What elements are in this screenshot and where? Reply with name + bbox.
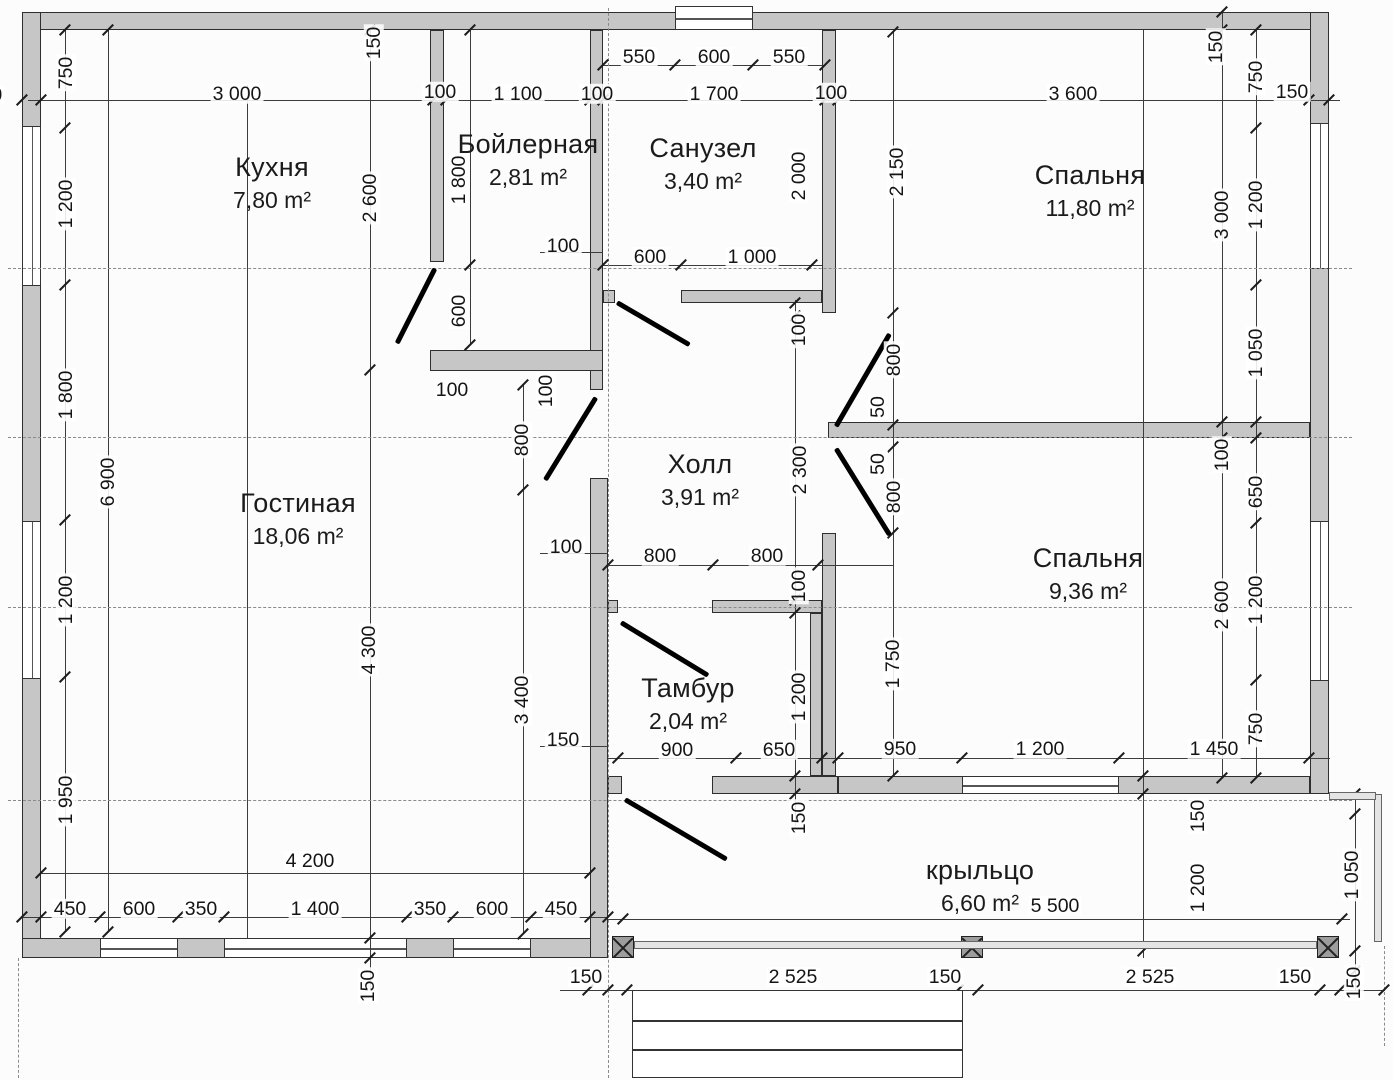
- dimension-label: 650: [1246, 474, 1266, 511]
- door-leaf: [624, 797, 728, 861]
- dimension-label: 150: [1206, 29, 1226, 66]
- window-mullion: [963, 785, 1118, 787]
- dimension-label: 50: [868, 394, 888, 420]
- dimension-label: 800: [749, 546, 786, 566]
- room-label: Тамбур2,04 m²: [641, 673, 734, 735]
- porch-rail: [1374, 794, 1382, 942]
- dimension-label: 100: [789, 568, 809, 605]
- dimension-label: 1 800: [56, 369, 76, 422]
- porch-post: [612, 936, 634, 958]
- window: [962, 776, 1119, 794]
- wall: [822, 533, 836, 776]
- dimension-label: 150: [545, 730, 582, 750]
- window-mullion: [32, 522, 34, 678]
- wall: [681, 290, 822, 303]
- room-label: крыльцо6,60 m²: [926, 855, 1034, 917]
- window: [100, 938, 178, 958]
- dimension-label: 600: [632, 247, 669, 267]
- dimension-label: 100: [545, 236, 582, 256]
- dimension-label: 50: [868, 451, 888, 477]
- dimension-label: 100: [1212, 437, 1232, 474]
- dimension-label: 750: [1246, 711, 1266, 748]
- wall: [603, 290, 615, 303]
- window: [1310, 123, 1329, 269]
- wall: [810, 613, 822, 776]
- dimension-label: 150: [358, 968, 378, 1005]
- dimension-label: 600: [696, 47, 733, 67]
- door-leaf: [616, 300, 691, 347]
- dimension-line: [41, 873, 590, 874]
- window-mullion: [32, 127, 34, 285]
- window: [22, 521, 41, 679]
- dimension-label: 3 400: [512, 674, 532, 727]
- room-name: Гостиная: [240, 488, 356, 519]
- axis-line: [8, 607, 1352, 608]
- dimension-label: 3 000: [1212, 189, 1232, 242]
- dimension-label: 1 050: [1246, 327, 1266, 380]
- dimension-label: 1 200: [56, 574, 76, 627]
- dimension-label: 100: [579, 84, 616, 104]
- room-label: Холл3,91 m²: [661, 449, 739, 511]
- room-name: крыльцо: [926, 855, 1034, 886]
- axis-line: [18, 958, 19, 1078]
- dimension-label: 150: [0, 85, 4, 105]
- room-area: 2,81 m²: [458, 164, 599, 191]
- dimension-label: 1 200: [1246, 574, 1266, 627]
- dimension-label: 950: [882, 739, 919, 759]
- dimension-label: 2 300: [790, 444, 810, 497]
- dimension-label: 2 600: [360, 172, 380, 225]
- room-area: 3,91 m²: [661, 484, 739, 511]
- dimension-label: 600: [474, 899, 511, 919]
- dimension-label: 3 600: [1047, 84, 1100, 104]
- window-mullion: [1320, 522, 1322, 680]
- room-name: Спальня: [1033, 543, 1144, 574]
- dimension-label: 1 200: [1246, 179, 1266, 232]
- dimension-label: 150: [568, 967, 605, 987]
- dimension-label: 150: [1274, 82, 1311, 102]
- room-area: 18,06 m²: [240, 523, 356, 550]
- dimension-label: 650: [761, 740, 798, 760]
- room-area: 2,04 m²: [641, 708, 734, 735]
- dimension-label: 100: [422, 82, 459, 102]
- dimension-label: 5 500: [1029, 896, 1082, 916]
- dimension-label: 100: [536, 373, 556, 410]
- dimension-line: [1222, 12, 1223, 778]
- window: [22, 126, 41, 286]
- window: [224, 938, 407, 958]
- dimension-label: 100: [548, 537, 585, 557]
- room-area: 9,36 m²: [1033, 578, 1144, 605]
- room-name: Санузел: [649, 133, 756, 164]
- dimension-line: [608, 919, 1350, 920]
- room-area: 6,60 m²: [926, 890, 1034, 917]
- dimension-label: 350: [412, 899, 449, 919]
- porch-stairs: [632, 990, 963, 1078]
- dimension-label: 2 000: [789, 150, 809, 203]
- window: [453, 938, 531, 958]
- dimension-label: 2 600: [1212, 579, 1232, 632]
- dimension-label: 1 200: [1188, 862, 1208, 915]
- wall: [608, 776, 622, 794]
- room-name: Спальня: [1035, 160, 1146, 191]
- dimension-label: 600: [121, 899, 158, 919]
- dimension-label: 100: [434, 380, 471, 400]
- window: [675, 6, 753, 30]
- dimension-label: 1 200: [789, 671, 809, 724]
- dimension-label: 800: [512, 422, 532, 459]
- dimension-label: 1 200: [56, 178, 76, 231]
- dimension-label: 1 050: [1342, 849, 1362, 902]
- porch-rail: [1329, 792, 1376, 800]
- porch-post: [1317, 936, 1339, 958]
- window: [1310, 521, 1329, 681]
- dimension-label: 1 400: [289, 899, 342, 919]
- room-label: Кухня7,80 m²: [233, 152, 311, 214]
- dimension-label: 900: [659, 740, 696, 760]
- dimension-label: 150: [789, 800, 809, 837]
- dimension-label: 1 950: [56, 774, 76, 827]
- room-name: Холл: [661, 449, 739, 480]
- room-name: Тамбур: [641, 673, 734, 704]
- dimension-label: 6 900: [98, 456, 118, 509]
- room-label: Спальня9,36 m²: [1033, 543, 1144, 605]
- dimension-label: 1 750: [883, 638, 903, 691]
- dimension-label: 3 000: [211, 84, 264, 104]
- dimension-label: 100: [789, 312, 809, 349]
- axis-line: [8, 437, 1352, 438]
- dimension-label: 1 700: [688, 84, 741, 104]
- dimension-label: 800: [884, 342, 904, 379]
- dimension-label: 150: [1344, 965, 1364, 1002]
- room-area: 11,80 m²: [1035, 195, 1146, 222]
- wall: [828, 422, 1310, 438]
- dimension-label: 1 450: [1188, 739, 1241, 759]
- dimension-label: 350: [183, 899, 220, 919]
- dimension-label: 750: [1246, 59, 1266, 96]
- dimension-label: 450: [543, 899, 580, 919]
- dimension-line: [523, 385, 524, 934]
- dimension-label: 4 300: [359, 624, 379, 677]
- room-label: Гостиная18,06 m²: [240, 488, 356, 550]
- dimension-label: 750: [56, 55, 76, 92]
- room-area: 3,40 m²: [649, 168, 756, 195]
- dimension-label: 800: [642, 546, 679, 566]
- window-mullion: [1320, 124, 1322, 268]
- dimension-label: 550: [621, 47, 658, 67]
- floor-plan-canvas: 1507503 0001001 1001001 7001003 60015015…: [0, 0, 1393, 1080]
- dimension-label: 150: [1277, 967, 1314, 987]
- stair-tread: [633, 1049, 962, 1051]
- room-name: Кухня: [233, 152, 311, 183]
- dimension-label: 1 200: [1014, 739, 1067, 759]
- wall: [590, 478, 608, 958]
- dimension-label: 150: [364, 25, 384, 62]
- dimension-label: 600: [449, 293, 469, 330]
- room-area: 7,80 m²: [233, 187, 311, 214]
- axis-line: [8, 800, 1352, 801]
- window-mullion: [454, 948, 530, 950]
- dimension-label: 100: [813, 83, 850, 103]
- wall: [712, 776, 838, 794]
- dimension-label: 450: [52, 899, 89, 919]
- stair-tread: [633, 1020, 962, 1022]
- wall: [430, 30, 444, 262]
- dimension-label: 4 200: [284, 851, 337, 871]
- window-mullion: [225, 948, 406, 950]
- room-name: Бойлерная: [458, 129, 599, 160]
- wall: [430, 350, 603, 371]
- porch-rail: [634, 941, 1317, 949]
- window-mullion: [101, 948, 177, 950]
- dimension-label: 1 000: [726, 247, 779, 267]
- dimension-label: 2 525: [1124, 967, 1177, 987]
- axis-line: [8, 268, 1352, 269]
- dimension-label: 150: [1188, 798, 1208, 835]
- window-mullion: [676, 18, 752, 20]
- room-label: Санузел3,40 m²: [649, 133, 756, 195]
- dimension-label: 150: [927, 967, 964, 987]
- dimension-label: 550: [771, 47, 808, 67]
- room-label: Бойлерная2,81 m²: [458, 129, 599, 191]
- dimension-label: 2 150: [887, 146, 907, 199]
- axis-line: [1384, 946, 1385, 1046]
- dimension-label: 800: [884, 479, 904, 516]
- dimension-label: 1 100: [492, 84, 545, 104]
- door-leaf: [395, 267, 437, 344]
- wall: [822, 30, 836, 313]
- room-label: Спальня11,80 m²: [1035, 160, 1146, 222]
- dimension-line: [1256, 30, 1257, 778]
- door-leaf: [620, 620, 710, 677]
- dimension-label: 2 525: [767, 967, 820, 987]
